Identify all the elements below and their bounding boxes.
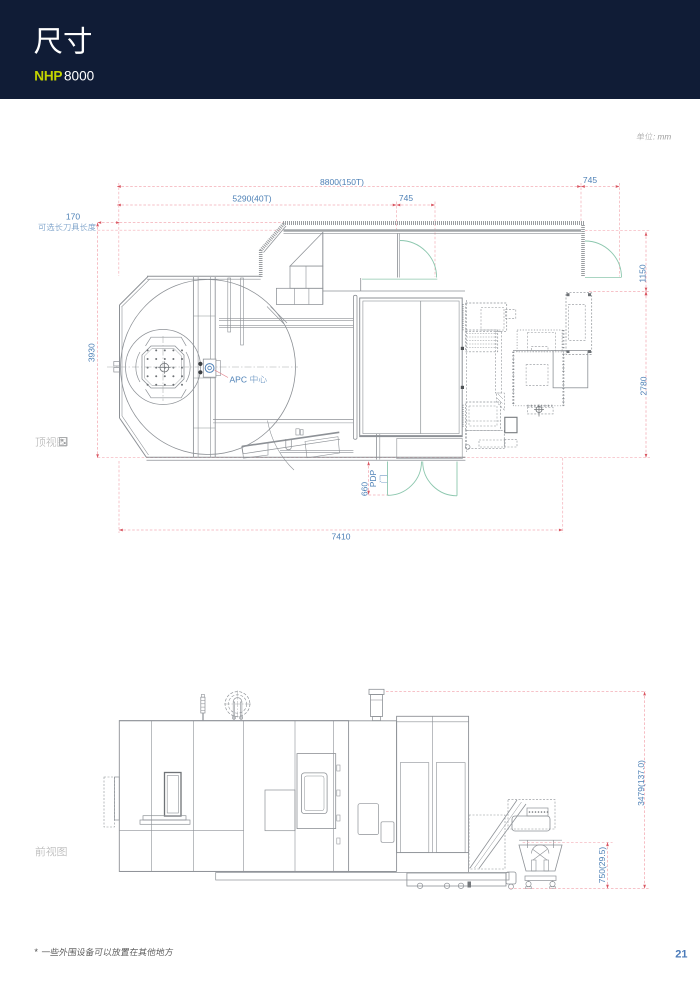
svg-text:: mm: : mm (653, 133, 671, 142)
svg-text:745: 745 (399, 193, 413, 203)
svg-text:745: 745 (583, 175, 597, 185)
svg-text:3479(137.0): 3479(137.0) (636, 760, 646, 806)
svg-text:PDP: PDP (368, 469, 378, 487)
svg-text:21: 21 (675, 949, 687, 961)
svg-text:1150: 1150 (637, 264, 647, 283)
svg-text:APC: APC (230, 375, 247, 385)
svg-text:170: 170 (66, 211, 80, 221)
svg-text:*: * (34, 947, 38, 957)
svg-text:750(29.5): 750(29.5) (597, 847, 607, 884)
svg-text:5290(40T): 5290(40T) (232, 194, 271, 204)
svg-text:3930: 3930 (87, 343, 97, 362)
svg-text:7410: 7410 (332, 532, 351, 542)
svg-text:NHP: NHP (34, 69, 62, 84)
svg-text:8000: 8000 (64, 69, 95, 84)
svg-text:8800(150T): 8800(150T) (320, 177, 364, 187)
svg-text:2780: 2780 (638, 376, 648, 395)
